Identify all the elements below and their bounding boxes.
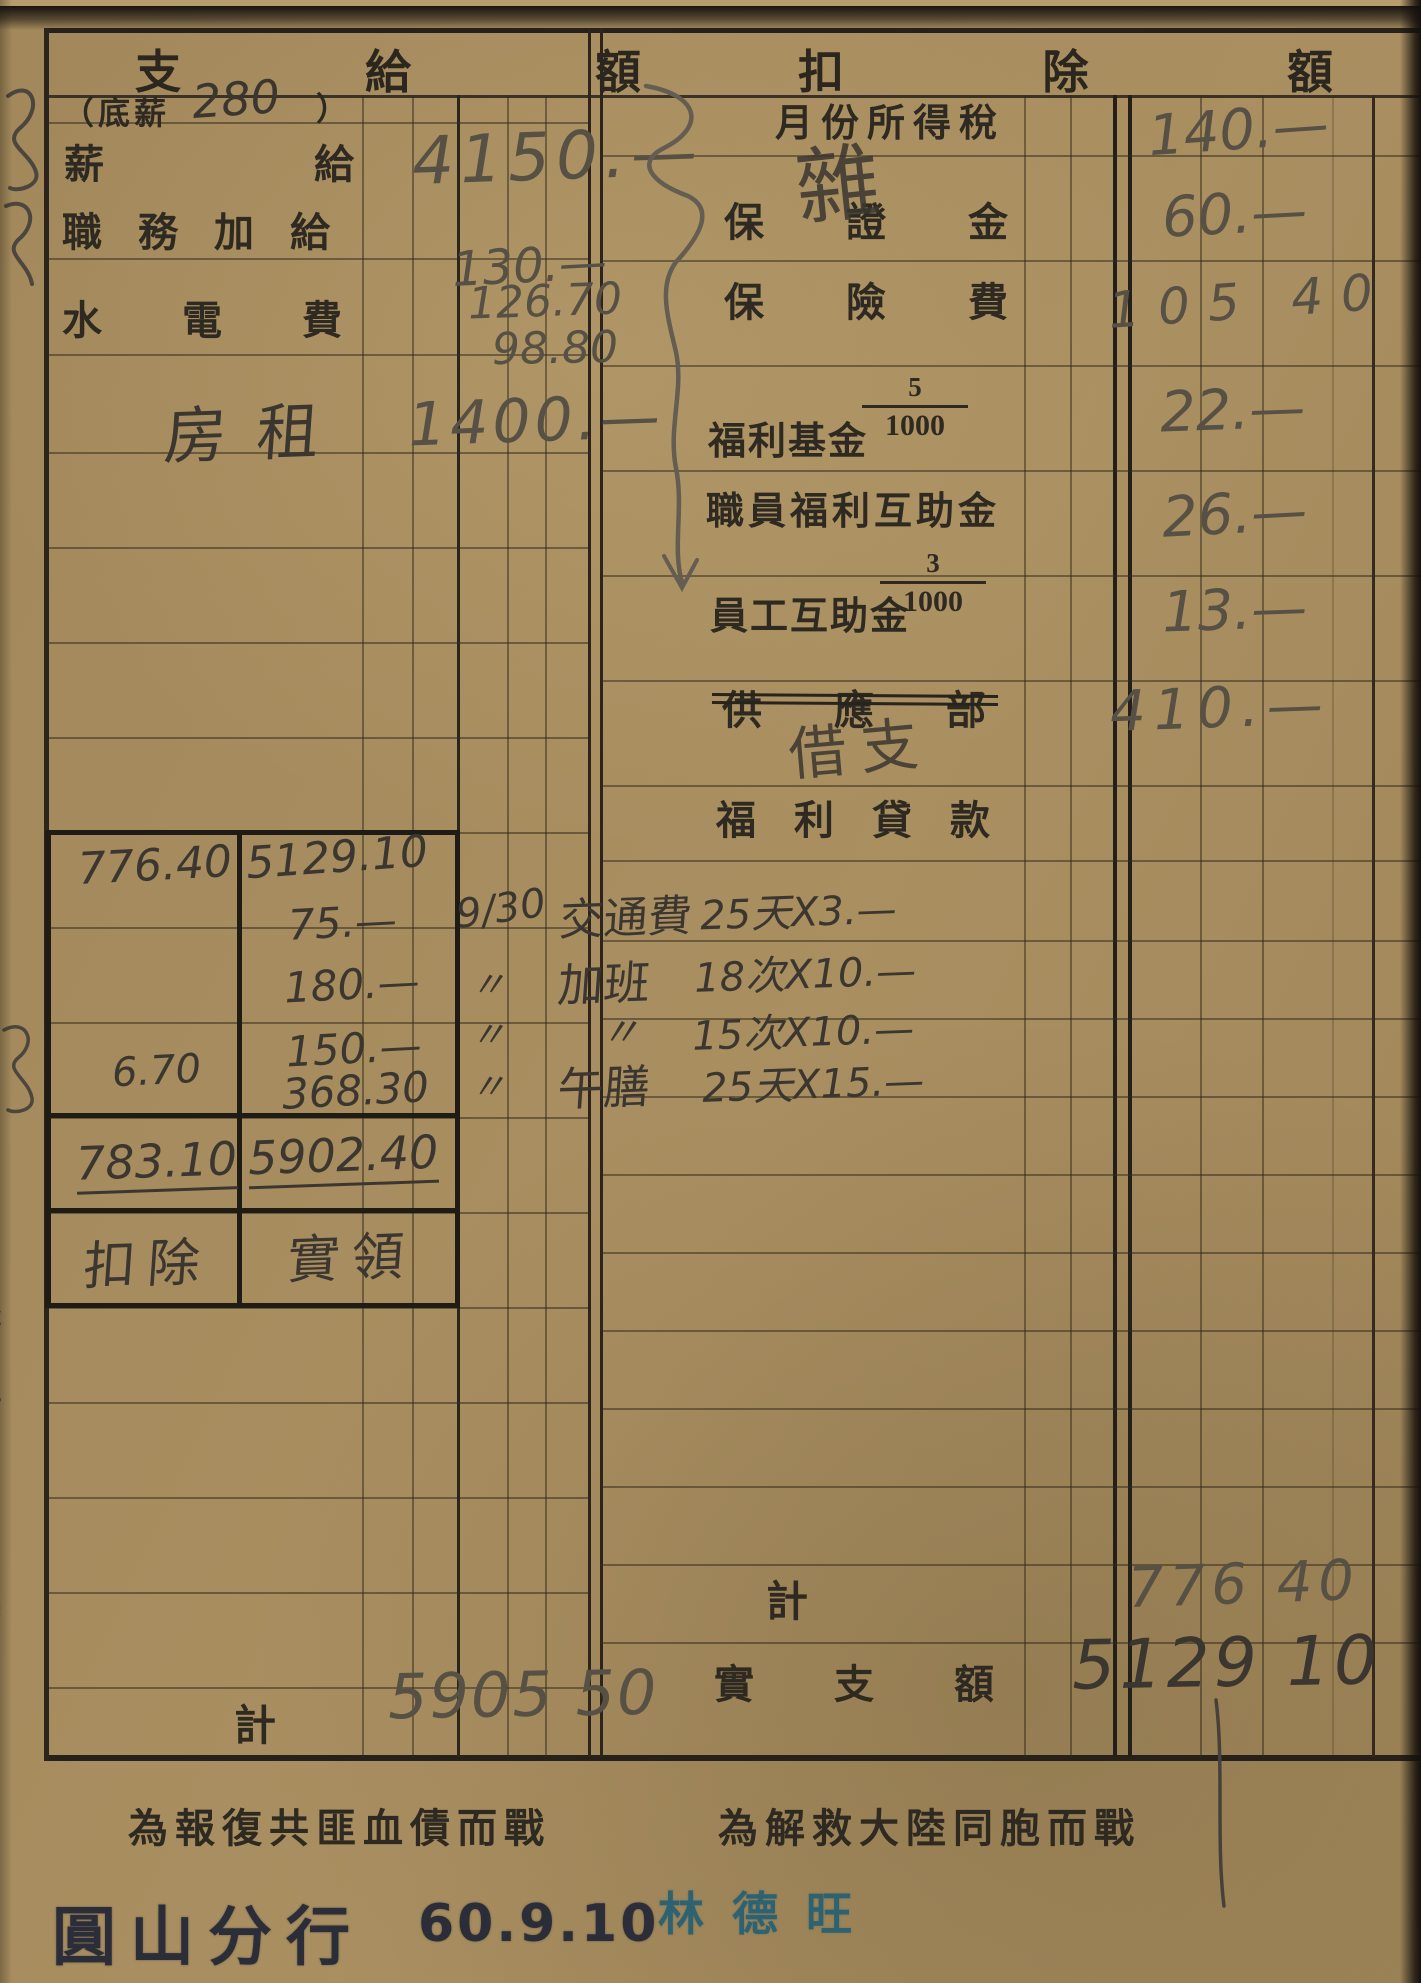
value-insurance: 105 40	[1106, 262, 1392, 340]
label-deduction-total: 計	[766, 1568, 808, 1629]
underlined-total: 5902.40	[247, 1125, 439, 1190]
box-addition: 75.—	[287, 895, 398, 950]
grid-line-h	[601, 260, 1421, 262]
box-deduction-addition: 6.70	[111, 1046, 202, 1097]
grid-line-h	[49, 547, 588, 549]
grid-line-h	[49, 1592, 588, 1594]
employee-mutual-aid-rate: 3 1000	[880, 548, 986, 619]
value-rent: 1400.—	[407, 382, 665, 461]
box-deduction-total: 783.10	[75, 1131, 238, 1191]
pen-tail-stroke	[1216, 1700, 1224, 1906]
annotation-formula: 25天X15.—	[701, 1048, 925, 1114]
grid-line-h	[601, 1252, 1421, 1254]
grid-line-v	[1262, 95, 1264, 1757]
grid-line-v	[1332, 95, 1334, 1757]
value-deduction-total: 776 40	[1127, 1548, 1361, 1621]
grid-line-h	[49, 1022, 588, 1024]
calc-box-border	[48, 1303, 460, 1308]
margin-scrawl-middle	[4, 1027, 32, 1112]
page-top-edge	[0, 0, 1421, 8]
grid-line-h	[49, 737, 588, 739]
box-caption-deduction: 扣除	[81, 1220, 215, 1299]
grid-line-v	[1070, 95, 1072, 1757]
annotation-date-ditto: 〃	[470, 956, 506, 1008]
value-water-electricity-2: 98.80	[492, 322, 619, 375]
grid-line-h	[49, 1497, 588, 1499]
branch-stamp: 圓山分行	[52, 1886, 364, 1978]
value-net-pay: 5129 10	[1071, 1621, 1382, 1705]
fraction-numerator: 3	[880, 548, 986, 584]
page-top-shadow	[0, 6, 1421, 30]
grid-line-v	[1113, 95, 1117, 1757]
box-net-total: 5902.40	[247, 1125, 439, 1186]
grid-line-v	[1024, 95, 1026, 1757]
page-right-shadow	[1400, 0, 1421, 1983]
calc-box-border	[237, 830, 242, 1308]
header-char: 除	[1043, 36, 1089, 102]
box-meal-net: 368.30	[281, 1062, 430, 1119]
label-insurance: 保險費	[724, 270, 1090, 328]
grid-line-h	[601, 1408, 1421, 1410]
annotation-formula: 18次X10.—	[693, 938, 917, 1004]
fraction-numerator: 5	[862, 372, 968, 408]
header-char: 額	[595, 36, 641, 102]
value-staff-mutual-aid: 26.—	[1160, 478, 1308, 551]
box-addition: 180.—	[283, 956, 421, 1012]
base-salary-note-suffix: ）	[316, 84, 348, 130]
calc-box-border	[48, 1208, 460, 1213]
value-salary: 4150.—	[411, 113, 704, 200]
label-welfare-loan: 福利貸款	[716, 788, 1028, 846]
value-welfare-fund: 22.—	[1159, 375, 1306, 445]
label-welfare-fund: 福利基金	[708, 410, 868, 465]
value-pay-total: 5905 50	[387, 1656, 659, 1734]
fraction-denominator: 1000	[862, 408, 968, 443]
table-bottom-border	[44, 1755, 1421, 1761]
label-water-electricity: 水電費	[62, 288, 422, 346]
grid-line-h	[49, 642, 588, 644]
grid-line-h	[601, 365, 1421, 367]
label-guarantee-deposit: 保證金	[724, 190, 1090, 248]
signature-stamp: 林德旺	[658, 1878, 880, 1944]
annotation-item-ditto: 〃	[600, 1000, 640, 1058]
label-duty-allowance: 職務加給	[62, 200, 366, 258]
margin-print-number: 總106號 60. 4. 30,000(北)	[0, 1306, 8, 1638]
annotation-formula: 25天X3.—	[699, 877, 897, 942]
grid-line-h	[601, 860, 1421, 862]
grid-line-h	[601, 470, 1421, 472]
header-char: 給	[365, 36, 411, 102]
table-top-border	[44, 28, 1421, 33]
welfare-fund-rate: 5 1000	[862, 372, 968, 443]
margin-scrawl-top	[6, 90, 36, 284]
grid-line-h	[601, 1486, 1421, 1488]
grid-line-v	[1372, 95, 1375, 1757]
annotation-item: 午膳	[556, 1050, 653, 1119]
box-deduction-subtotal: 776.40	[77, 836, 233, 895]
fraction-denominator: 1000	[880, 584, 986, 619]
note-advance-handwritten: 借支	[785, 696, 936, 792]
base-salary-amount-handwritten: 280	[190, 69, 281, 129]
calc-box-border	[48, 1113, 460, 1118]
annotation-item: 交通費	[558, 880, 695, 949]
value-employee-mutual-aid: 13.—	[1161, 575, 1308, 645]
grid-line-h	[49, 1402, 588, 1404]
annotation-date-ditto: 〃	[470, 1006, 506, 1058]
date-stamp: 60.9.10	[418, 1894, 659, 1954]
slogan-right: 為解救大陸同胞而戰	[718, 1796, 1141, 1854]
value-supply-dept: 410.—	[1109, 672, 1332, 745]
label-rent-handwritten: 房租	[162, 380, 353, 476]
label-staff-mutual-aid: 職員福利互助金	[706, 480, 1000, 535]
arrowhead	[664, 556, 697, 588]
underlined-total: 783.10	[75, 1131, 238, 1195]
label-pay-total: 計	[234, 1692, 276, 1753]
page-left-shadow	[0, 0, 12, 1983]
box-net-subtotal: 5129.10	[244, 826, 429, 890]
label-net-pay: 實支額	[714, 1652, 1074, 1710]
annotation-date-ditto: 〃	[470, 1058, 506, 1110]
slogan-left: 為報復共匪血債而戰	[128, 1796, 551, 1854]
calc-box-border	[45, 830, 51, 1308]
note-misc-handwritten: 雜	[789, 114, 885, 243]
grid-line-v	[1128, 95, 1132, 1757]
annotation-date: 9/30	[453, 880, 548, 938]
payroll-slip-scan: 支 給 額 扣 除 額 （底薪 280 ） 薪給 4150.— 職務加給 130…	[0, 0, 1421, 1983]
value-guarantee-deposit: 60.—	[1160, 178, 1308, 251]
base-salary-note-prefix: （底薪	[62, 88, 170, 134]
grid-line-h	[601, 785, 1421, 787]
box-caption-net-received: 實領	[285, 1214, 419, 1293]
value-income-tax: 140.—	[1146, 92, 1331, 169]
grid-line-h	[601, 1330, 1421, 1332]
grid-line-v	[1200, 95, 1202, 1757]
grid-line-h	[601, 1174, 1421, 1176]
